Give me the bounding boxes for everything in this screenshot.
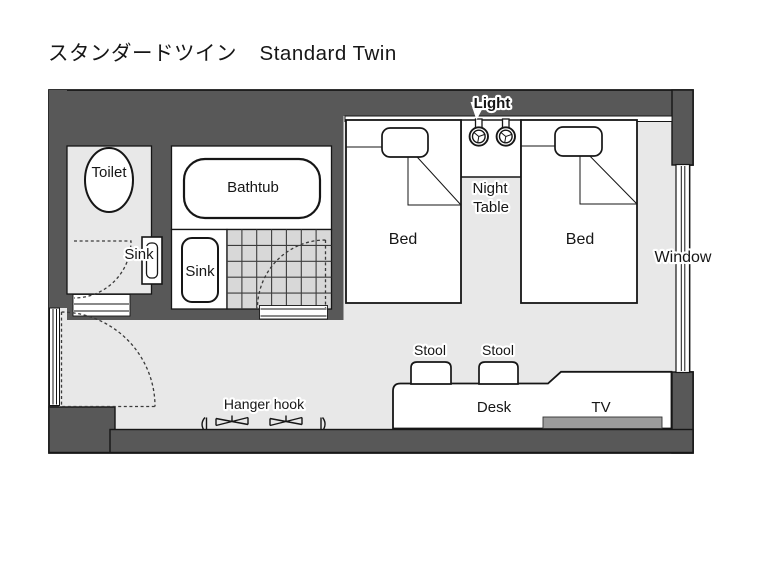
bed-right-fixture	[521, 120, 637, 303]
wall-toilet-bath-divider	[152, 146, 172, 320]
wall-upper-left-block	[49, 114, 344, 146]
light-label: Light	[474, 95, 511, 112]
toilet-threshold	[73, 295, 130, 317]
stool-right-label: Stool	[482, 342, 514, 358]
bath-threshold	[260, 306, 328, 320]
night-table-label-line2: Table	[473, 199, 509, 216]
desk-label: Desk	[477, 399, 512, 416]
wall-bottom	[110, 430, 693, 453]
night-table-label-line1: Night	[472, 180, 508, 197]
hanger-hook-label: Hanger hook	[224, 396, 305, 412]
bed-left-label: Bed	[389, 231, 417, 248]
stool-right-fixture	[479, 362, 518, 384]
toilet-sink-label: Sink	[124, 246, 154, 263]
bed-left-fixture	[346, 120, 461, 303]
wall-entry-step	[49, 407, 115, 453]
bed-left-pillow	[382, 128, 428, 157]
window-frame	[676, 165, 690, 373]
stool-left-fixture	[411, 362, 451, 384]
tv-label: TV	[591, 399, 610, 416]
floor-plan: Toilet Sink Bathtub Sink Bed Bed Night T…	[0, 0, 780, 585]
window-label: Window	[655, 249, 712, 266]
bed-right-pillow	[555, 127, 602, 156]
toilet-label: Toilet	[91, 164, 127, 181]
wall-left	[49, 90, 67, 308]
bathtub-label: Bathtub	[227, 179, 279, 196]
bed-right-label: Bed	[566, 231, 594, 248]
tv-fixture	[543, 417, 662, 429]
stool-left-label: Stool	[414, 342, 446, 358]
wall-bath-bed-divider	[332, 146, 344, 320]
bath-sink-label: Sink	[185, 263, 215, 280]
wall-right-post-top	[672, 90, 693, 165]
entry-threshold	[50, 308, 60, 406]
window	[676, 165, 690, 373]
